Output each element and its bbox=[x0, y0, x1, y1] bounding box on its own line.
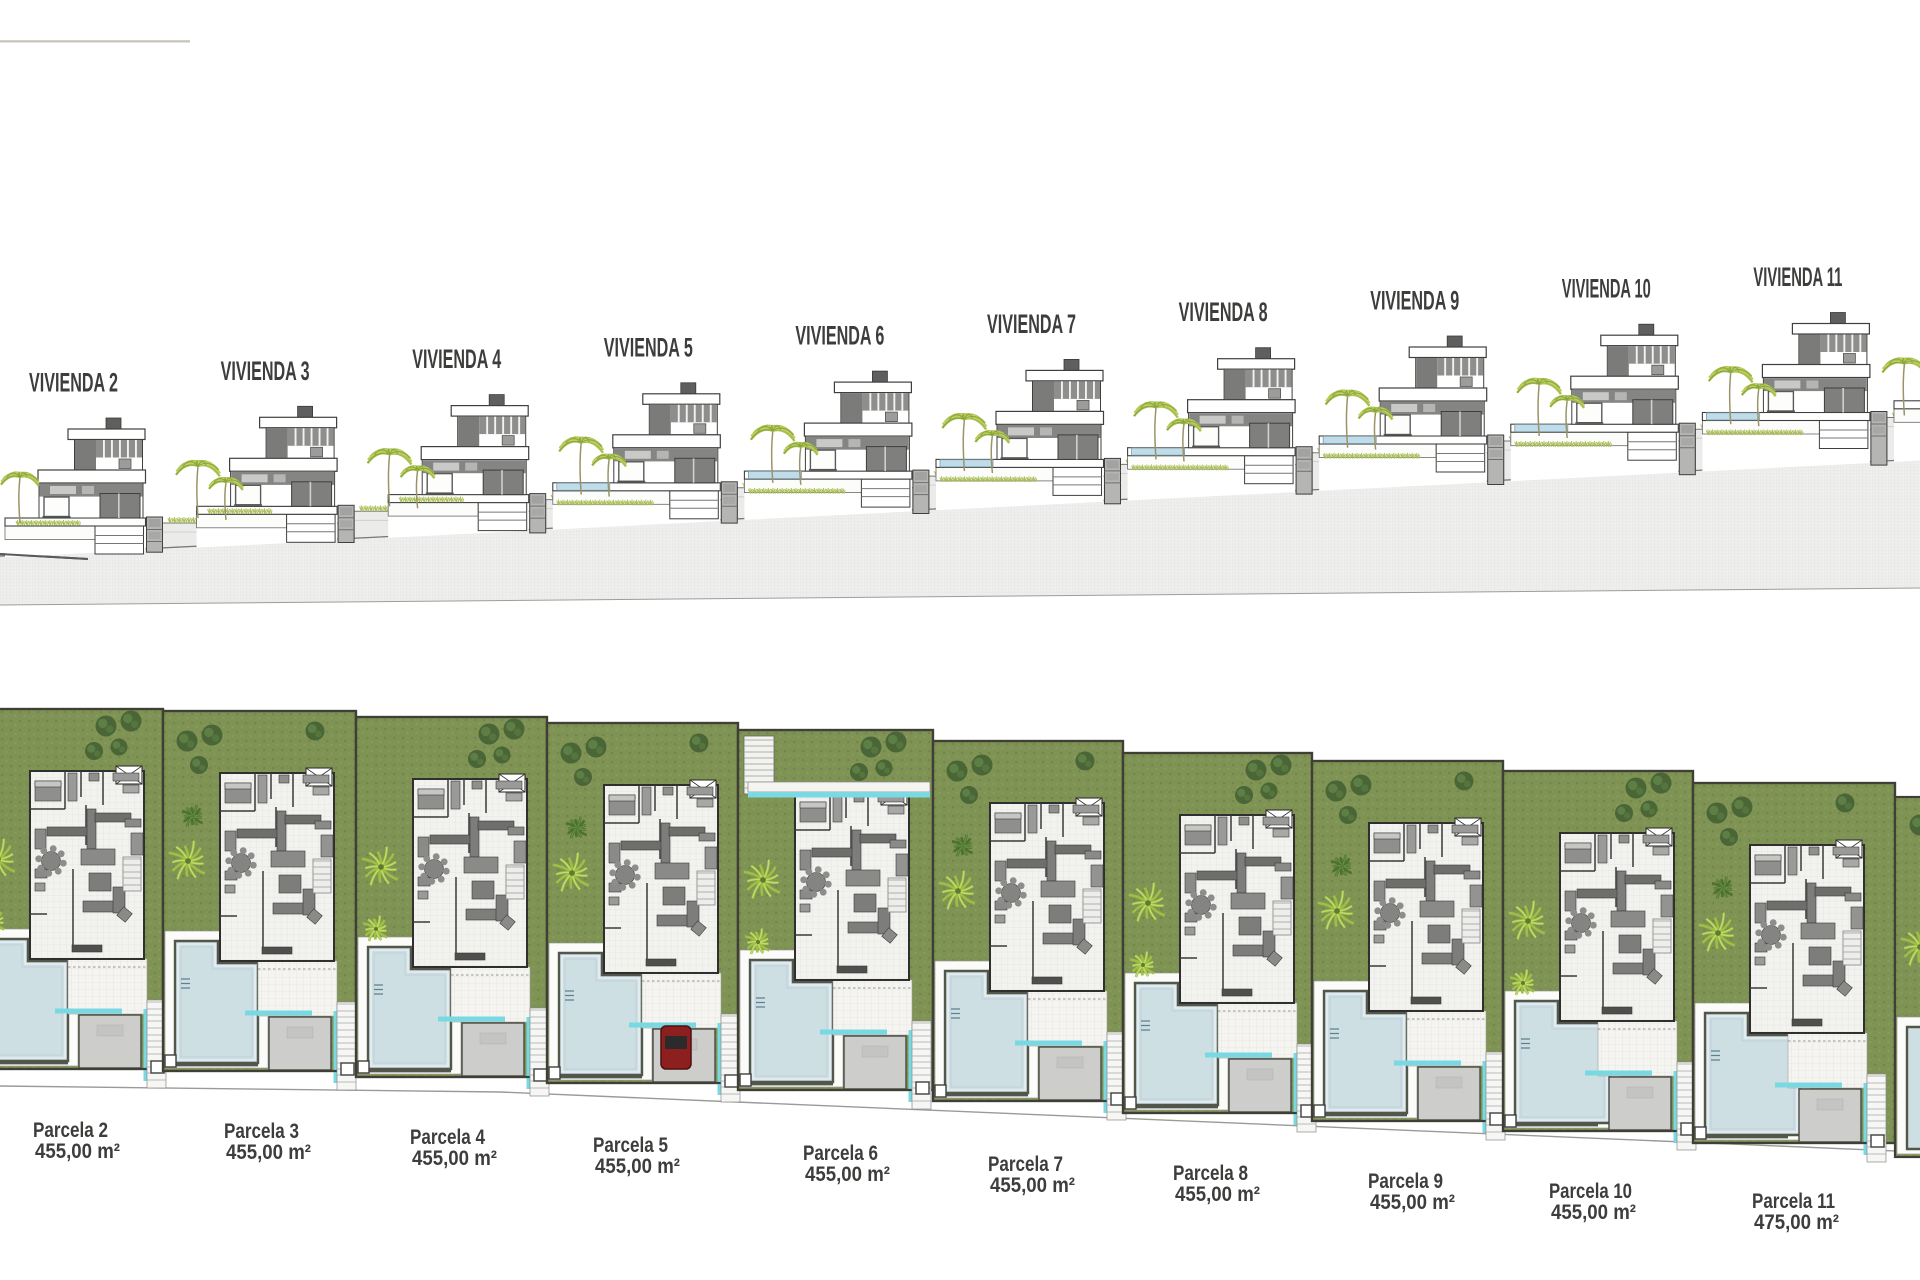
svg-text:Parcela 4: Parcela 4 bbox=[410, 1126, 485, 1149]
svg-text:VIVIENDA 5: VIVIENDA 5 bbox=[604, 332, 693, 362]
svg-text:Parcela 11: Parcela 11 bbox=[1752, 1190, 1835, 1213]
svg-text:455,00 m²: 455,00 m² bbox=[1175, 1183, 1260, 1206]
svg-text:Parcela 6: Parcela 6 bbox=[803, 1142, 878, 1165]
svg-text:455,00 m²: 455,00 m² bbox=[990, 1174, 1075, 1197]
svg-text:Parcela 8: Parcela 8 bbox=[1173, 1162, 1248, 1185]
svg-text:455,00 m²: 455,00 m² bbox=[35, 1140, 120, 1163]
svg-text:VIVIENDA 2: VIVIENDA 2 bbox=[29, 368, 118, 398]
svg-text:475,00 m²: 475,00 m² bbox=[1754, 1211, 1839, 1234]
svg-text:Parcela 7: Parcela 7 bbox=[988, 1153, 1063, 1176]
svg-text:Parcela 10: Parcela 10 bbox=[1549, 1180, 1632, 1203]
svg-text:Parcela 5: Parcela 5 bbox=[593, 1134, 668, 1157]
svg-text:Parcela 2: Parcela 2 bbox=[33, 1119, 108, 1142]
svg-text:Parcela 9: Parcela 9 bbox=[1368, 1170, 1443, 1193]
svg-text:VIVIENDA 10: VIVIENDA 10 bbox=[1562, 274, 1651, 304]
svg-text:455,00 m²: 455,00 m² bbox=[1370, 1191, 1455, 1214]
svg-text:455,00 m²: 455,00 m² bbox=[1551, 1201, 1636, 1224]
svg-text:455,00 m²: 455,00 m² bbox=[595, 1155, 680, 1178]
svg-text:Parcela 3: Parcela 3 bbox=[224, 1120, 299, 1143]
svg-text:VIVIENDA 4: VIVIENDA 4 bbox=[412, 344, 501, 374]
svg-text:VIVIENDA 6: VIVIENDA 6 bbox=[795, 321, 884, 351]
svg-text:455,00 m²: 455,00 m² bbox=[226, 1141, 311, 1164]
svg-text:VIVIENDA 3: VIVIENDA 3 bbox=[221, 356, 310, 386]
svg-text:VIVIENDA 9: VIVIENDA 9 bbox=[1370, 286, 1459, 316]
svg-text:455,00 m²: 455,00 m² bbox=[412, 1147, 497, 1170]
svg-text:VIVIENDA 11: VIVIENDA 11 bbox=[1753, 262, 1842, 292]
svg-text:VIVIENDA 7: VIVIENDA 7 bbox=[987, 309, 1076, 339]
svg-text:455,00 m²: 455,00 m² bbox=[805, 1163, 890, 1186]
svg-text:VIVIENDA 8: VIVIENDA 8 bbox=[1179, 297, 1268, 327]
